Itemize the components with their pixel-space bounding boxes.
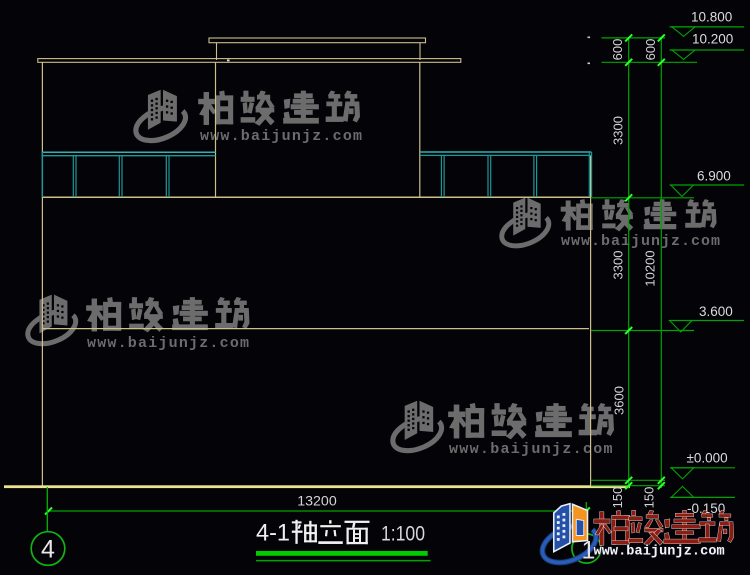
svg-text:www.baijunjz.com: www.baijunjz.com (200, 128, 363, 145)
svg-text:www.baijunjz.com: www.baijunjz.com (449, 441, 614, 458)
svg-text:10.200: 10.200 (692, 32, 733, 47)
svg-text:600: 600 (643, 39, 658, 61)
svg-text:13200: 13200 (297, 494, 337, 510)
svg-text:600: 600 (610, 39, 625, 61)
svg-text:10.800: 10.800 (691, 10, 732, 25)
svg-text:3300: 3300 (611, 116, 626, 145)
svg-text:4: 4 (41, 536, 55, 564)
svg-text:www.baijunjz.com: www.baijunjz.com (561, 233, 721, 250)
svg-text:3.600: 3.600 (699, 304, 733, 319)
svg-text:3600: 3600 (612, 386, 627, 415)
svg-text:6.900: 6.900 (697, 169, 731, 184)
svg-text:www.baijunjz.com: www.baijunjz.com (87, 335, 250, 352)
svg-text:±0.000: ±0.000 (687, 451, 728, 466)
svg-text:1: 1 (582, 537, 596, 565)
svg-text:4-1: 4-1 (256, 520, 290, 547)
svg-text:10200: 10200 (643, 250, 658, 286)
svg-text:150: 150 (610, 487, 625, 509)
svg-text:3300: 3300 (611, 251, 626, 280)
svg-text:www.baijunjz.com: www.baijunjz.com (594, 545, 725, 560)
svg-text:150: 150 (642, 487, 657, 509)
svg-text:1:100: 1:100 (381, 523, 425, 546)
